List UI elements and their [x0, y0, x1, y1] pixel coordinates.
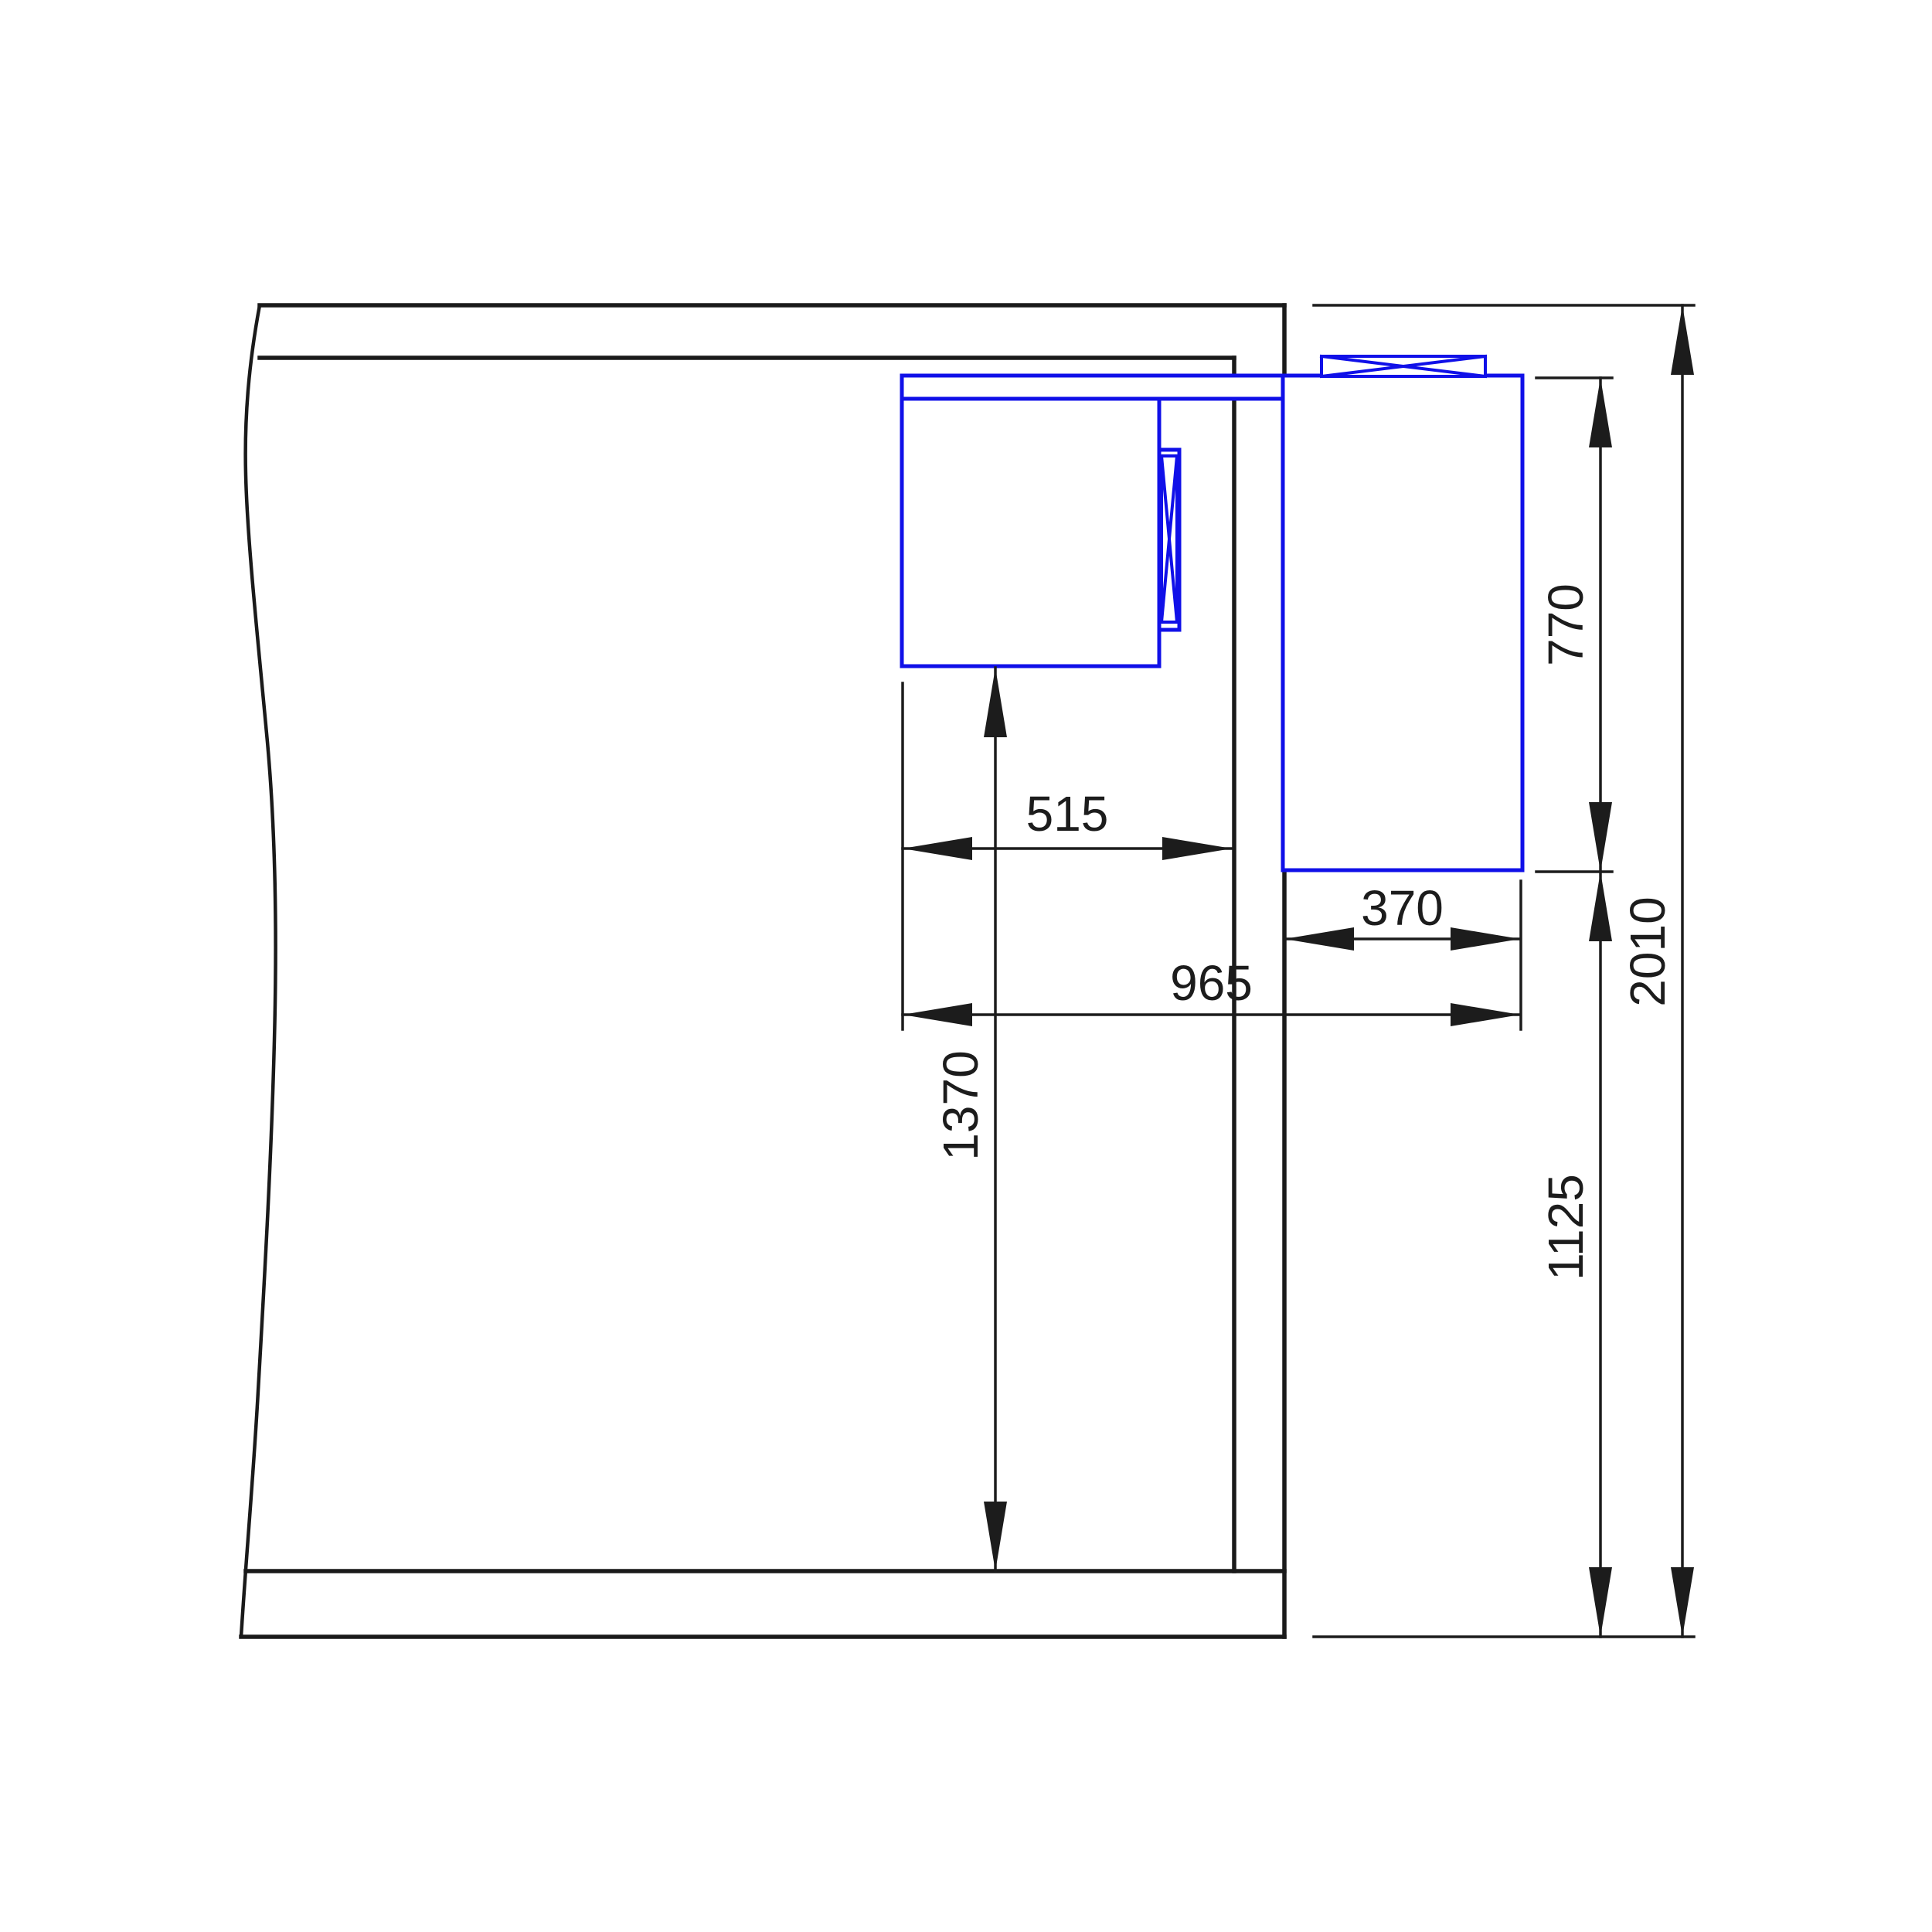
dim-1370-label: 1370 [933, 1050, 988, 1160]
dim-965-label: 965 [1170, 955, 1253, 1011]
dim-515-label: 515 [1026, 786, 1109, 842]
dim-370-label: 370 [1361, 880, 1444, 936]
dim-1125-label: 1125 [1538, 1174, 1594, 1281]
indoor-unit-body [902, 399, 1159, 666]
dim-770-label: 770 [1538, 583, 1594, 666]
outdoor-unit-body [1283, 376, 1522, 870]
dim-2010-label: 2010 [1620, 896, 1675, 1006]
indoor-unit-mounting-flange [902, 376, 1283, 399]
drawing-svg: 515370965137077011252010 [0, 0, 1932, 1932]
technical-drawing-page: 515370965137077011252010 [0, 0, 1932, 1932]
